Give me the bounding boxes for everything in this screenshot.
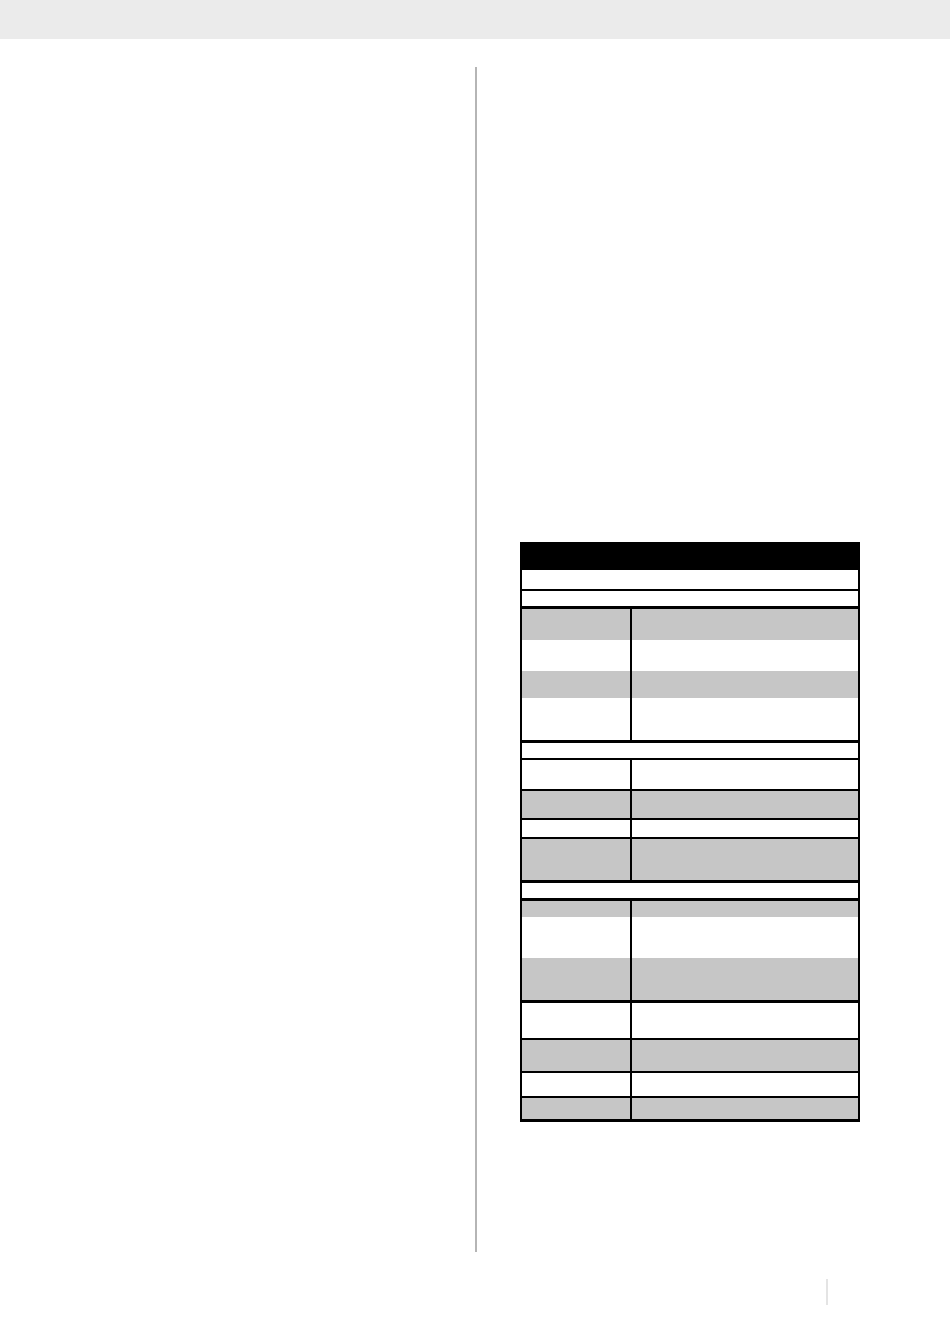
table-row: [522, 640, 858, 671]
table-row: [522, 760, 858, 791]
table-row: [522, 917, 858, 958]
table-cell-value: [632, 698, 858, 740]
table-cell-value: [632, 1098, 858, 1119]
table-cell-value: [632, 917, 858, 958]
table-row: [522, 1003, 858, 1040]
table-section-band: [522, 591, 858, 609]
table-cell-label: [522, 917, 632, 958]
table-row: [522, 958, 858, 1003]
table-row: [522, 820, 858, 839]
table-cell-value: [632, 1003, 858, 1038]
table-cell-value: [632, 609, 858, 640]
table-cell-label: [522, 1003, 632, 1038]
table-cell-value: [632, 1040, 858, 1071]
table-cell-value: [632, 671, 858, 698]
table-section-band: [522, 570, 858, 591]
table-cell-label: [522, 609, 632, 640]
table-cell-value: [632, 640, 858, 671]
table-cell-label: [522, 1098, 632, 1119]
table-section-band: [522, 743, 858, 760]
table-row: [522, 1040, 858, 1073]
table-cell-value: [632, 958, 858, 1000]
table-cell-value: [632, 839, 858, 880]
page-header-strip: [0, 0, 950, 39]
table-section-band: [522, 883, 858, 901]
table-cell-label: [522, 791, 632, 818]
table-row: [522, 791, 858, 820]
table-row: [522, 1098, 858, 1119]
page-edge-mark: [826, 1279, 828, 1305]
table-row: [522, 698, 858, 743]
column-divider-rule: [475, 67, 477, 1252]
table-cell-value: [632, 791, 858, 818]
table-row: [522, 901, 858, 917]
table-row: [522, 839, 858, 883]
table-cell-value: [632, 901, 858, 917]
table-cell-label: [522, 820, 632, 837]
table-row: [522, 671, 858, 698]
table-cell-value: [632, 1073, 858, 1096]
table-cell-label: [522, 640, 632, 671]
table-row: [522, 609, 858, 640]
table-cell-label: [522, 958, 632, 1000]
table-cell-label: [522, 1073, 632, 1096]
table-cell-label: [522, 698, 632, 740]
table-title-bar: [522, 544, 858, 570]
table-cell-label: [522, 839, 632, 880]
table-cell-label: [522, 760, 632, 789]
table-cell-label: [522, 901, 632, 917]
table-cell-value: [632, 820, 858, 837]
table-cell-label: [522, 671, 632, 698]
table-row: [522, 1073, 858, 1098]
table-cell-label: [522, 1040, 632, 1071]
table-cell-value: [632, 760, 858, 789]
specifications-table: [520, 542, 860, 1122]
